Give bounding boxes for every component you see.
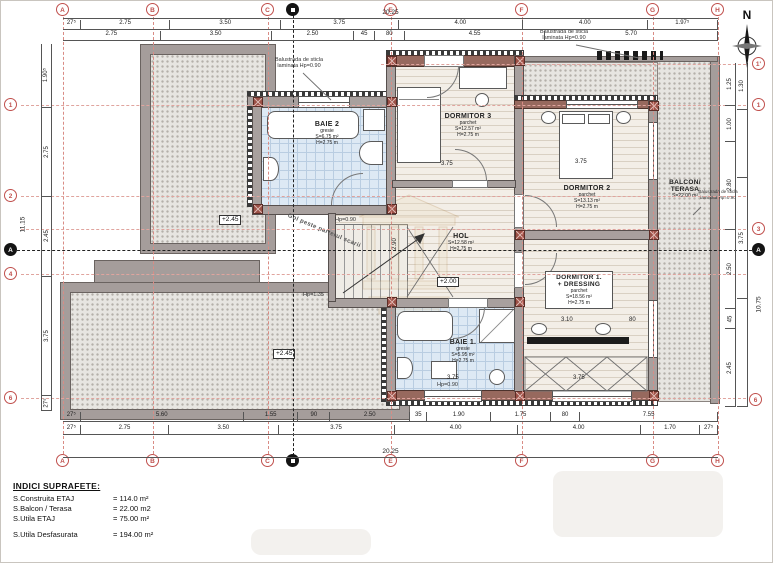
- parapet-height-note: Hp=1.35: [303, 292, 324, 298]
- room-name: HOL: [429, 233, 493, 240]
- room-height: H=2.75 m: [431, 358, 495, 364]
- parapet-height-note: Hp=0.90: [437, 382, 458, 388]
- dim-overall-bottom-value: 20.25: [382, 448, 398, 457]
- grid-line-h: [718, 17, 719, 454]
- dim-row-bottom-2: 27⁵2.753.503.754.004.001.7027⁵: [63, 425, 718, 435]
- wall-pier: [387, 391, 397, 401]
- dim-segment: 4.00: [395, 425, 518, 434]
- grid-bubble-2-left: 2: [4, 189, 17, 202]
- wall-baie2-south: [253, 206, 393, 214]
- grid-line-f: [522, 17, 523, 454]
- legend-indici-suprafete: INDICI SUPRAFETE: S.Construita ETAJ = 11…: [13, 481, 243, 540]
- parapet-height-note: Hp=0.90: [335, 217, 356, 223]
- floor-plan-canvas: BAIE 2 gresie S=6.75 m² H=2.75 m DORMITO…: [0, 0, 773, 563]
- room-height: H=2.75 m: [291, 140, 363, 146]
- grid-bubble-1-left: 1: [4, 98, 17, 111]
- legend-row-value: = 194.00 m²: [113, 530, 153, 540]
- level-marker-hol: +2.00: [437, 277, 459, 287]
- room-name: DORMITOR 2: [545, 185, 629, 192]
- grid-line-3: [21, 229, 746, 230]
- room-name: BAIE 1.: [431, 339, 495, 346]
- room-name: DORMITOR 1.: [547, 274, 611, 281]
- legend-row: S.Utila ETAJ = 75.00 m²: [13, 514, 243, 524]
- nightstand: [616, 111, 631, 124]
- dim-segment: 4.00: [399, 20, 524, 29]
- interior-dim: 3.10: [561, 317, 573, 323]
- dim-segment: 3.75: [41, 277, 51, 396]
- dim-segment: 27⁵: [63, 425, 81, 434]
- legend-row: S.Construita ETAJ = 114.0 m²: [13, 494, 243, 504]
- grid-bubble-1-right: 1: [752, 98, 765, 111]
- dim-segment: 1.00: [725, 106, 735, 142]
- dresser-dormitor1: [527, 337, 629, 344]
- room-label-baie1: BAIE 1. gresie S=5.95 m² H=2.75 m: [431, 339, 495, 364]
- dim-segment: 2.50: [725, 230, 735, 309]
- dim-segment: 2.75: [63, 31, 161, 40]
- legend-row-label: S.Utila Desfasurata: [13, 530, 113, 540]
- north-label: N: [729, 9, 765, 21]
- door-gap-baie1: [449, 299, 487, 307]
- wall-pier: [515, 391, 525, 401]
- interior-dim: 3.75: [447, 375, 459, 381]
- dim-segment: 4.00: [523, 20, 648, 29]
- wall-pier: [649, 230, 659, 240]
- legend-rows: S.Construita ETAJ = 114.0 m² S.Balcon / …: [13, 494, 243, 540]
- faint-stamp: [251, 529, 371, 555]
- wall-dormitor1-north: [523, 231, 649, 239]
- dim-segment: 45: [354, 31, 374, 40]
- dim-segment: 5.70: [545, 31, 718, 40]
- dim-segment: 2.75: [41, 108, 51, 197]
- wall-pier: [387, 204, 397, 214]
- dim-segment: 3.75: [279, 425, 395, 434]
- pillow-line: [399, 99, 439, 100]
- dim-segment: 1.97⁵: [648, 20, 718, 29]
- legend-row: S.Balcon / Terasa = 22.00 m2: [13, 504, 243, 514]
- dim-segment: 45: [725, 309, 735, 329]
- dim-segment: 4.00: [518, 425, 641, 434]
- balustrade-note-left: Balustrada de sticla laminata Hp=0.90: [267, 57, 331, 69]
- north-compass: N: [729, 9, 765, 74]
- dim-segment: 3.50: [170, 20, 281, 29]
- shower-baie1: [479, 309, 515, 343]
- room-name: BAIE 2: [291, 121, 363, 128]
- dim-segment: 3.75: [281, 20, 399, 29]
- legend-row-value: = 22.00 m2: [113, 504, 151, 514]
- section-bubble-a-right: A: [752, 243, 765, 256]
- grid-line-g: [653, 17, 654, 454]
- door-gap-dormitor3: [453, 181, 487, 187]
- wall-hol-south: [329, 299, 523, 307]
- room-label-baie2: BAIE 2 gresie S=6.75 m² H=2.75 m: [291, 121, 363, 146]
- room-height: H=2.75 m: [545, 204, 629, 210]
- section-bubble-a-left: A: [4, 243, 17, 256]
- dim-segment: 80: [551, 412, 580, 421]
- room-height: H=2.75 m: [429, 132, 507, 138]
- window-dormitor1-south: [553, 391, 631, 401]
- dim-overall-bottom: 20.25: [63, 448, 718, 458]
- nightstand: [541, 111, 556, 124]
- dim-segment: 2.75: [81, 425, 170, 434]
- legend-row: S.Utila Desfasurata = 194.00 m²: [13, 530, 243, 540]
- pillow: [562, 114, 585, 124]
- washer-baie2: [363, 109, 385, 131]
- dim-segment: [737, 299, 747, 407]
- toilet-baie1: [397, 357, 413, 379]
- room-name: DORMITOR 3: [429, 113, 507, 120]
- wall-baie2-west: [253, 107, 261, 214]
- interior-dim: 80: [629, 317, 636, 323]
- dim-segment: 35: [410, 412, 427, 421]
- section-line-horizontal: [7, 250, 762, 251]
- wall-stair-west: [329, 214, 335, 301]
- dim-segment: 80: [375, 31, 405, 40]
- grid-bubble-6-left: 6: [4, 391, 17, 404]
- room-label-dormitor1: DORMITOR 1. + DRESSING parchet S=18.56 m…: [545, 271, 613, 309]
- interior-dim: 3.75: [575, 159, 587, 165]
- dim-segment: 7.55: [580, 412, 718, 421]
- side-table: [531, 323, 547, 335]
- dim-col-right-inner: 1.251.002.802.50452.45: [725, 63, 736, 407]
- floor-hol-upper: [393, 187, 515, 217]
- dim-segment: 27⁵: [63, 412, 81, 421]
- room-label-dormitor2: DORMITOR 2 parchet S=13.13 m² H=2.75 m: [545, 185, 629, 210]
- dim-segment: 1.75: [491, 412, 551, 421]
- room-name2: + DRESSING: [547, 281, 611, 288]
- dim-overall-right: 10.75: [756, 296, 763, 312]
- dim-row-bottom-1: 27⁵5.601.55902.50351.901.75807.55: [63, 412, 718, 422]
- grid-line-b: [153, 17, 154, 454]
- interior-dim: 3.75: [441, 161, 453, 167]
- grid-line-1: [21, 105, 746, 106]
- dim-overall-top: 20.25: [63, 9, 718, 19]
- toilet-baie2: [263, 157, 279, 181]
- grid-bubble-6-right: 6: [749, 393, 762, 406]
- dim-col-right-outer: 1.303.75: [737, 63, 748, 407]
- legend-title: INDICI SUPRAFETE:: [13, 481, 243, 491]
- window-baie1-south: [425, 391, 481, 401]
- legend-row-value: = 75.00 m²: [113, 514, 149, 524]
- grid-line-e: [391, 17, 392, 454]
- interior-dim: 3.75: [573, 375, 585, 381]
- dim-segment: 3.75: [737, 178, 747, 299]
- dim-row-top-1: 27⁵2.753.503.754.004.001.97⁵: [63, 20, 718, 30]
- dim-segment: 2.50: [272, 31, 355, 40]
- grid-line-a: [63, 17, 64, 454]
- level-marker-terrace-upper: +2.45: [219, 215, 241, 225]
- grid-line-6: [21, 398, 746, 399]
- legend-row-label: S.Utila ETAJ: [13, 514, 113, 524]
- dim-overall-top-value: 20.25: [382, 9, 398, 18]
- dim-segment: 2.80: [725, 142, 735, 230]
- wall-pier: [649, 391, 659, 401]
- side-table: [595, 323, 611, 335]
- wall-pier: [649, 101, 659, 111]
- section-line-vertical: [293, 15, 294, 461]
- dim-segment: 1.90⁵: [41, 44, 51, 108]
- grid-line-c: [268, 17, 269, 454]
- dim-overall-left: 11.15: [19, 217, 26, 233]
- legend-row-label: S.Construita ETAJ: [13, 494, 113, 504]
- dim-segment: 2.50: [330, 412, 410, 421]
- pillow: [588, 114, 610, 124]
- wall-pier: [515, 230, 525, 240]
- dim-segment: 27⁵: [700, 425, 718, 434]
- interior-dim: 2.90: [392, 238, 398, 250]
- dim-segment: 5.60: [81, 412, 244, 421]
- dim-segment: 2.75: [81, 20, 171, 29]
- dim-segment: [737, 110, 747, 178]
- desk-dormitor3: [459, 67, 507, 89]
- room-height: H=2.75 m: [429, 246, 493, 252]
- dim-segment: 3.50: [161, 31, 272, 40]
- room-height: H=2.75 m: [547, 300, 611, 306]
- wall-pier: [253, 204, 263, 214]
- dim-segment: 3.50: [169, 425, 278, 434]
- room-label-dormitor3: DORMITOR 3 parchet S=12.57 m² H=2.75 m: [429, 113, 507, 138]
- dim-segment: 1.55: [244, 412, 298, 421]
- legend-row-value: = 114.0 m²: [113, 494, 149, 504]
- bathtub-baie1: [397, 311, 453, 341]
- dim-segment: 27⁵: [41, 396, 51, 411]
- grid-bubble-4-left: 4: [4, 267, 17, 280]
- dim-segment: 2.45: [41, 197, 51, 277]
- parapet-band: [95, 261, 259, 285]
- dim-col-left: 1.90⁵2.752.453.7527⁵: [41, 44, 52, 411]
- compass-rose-icon: [730, 21, 764, 69]
- dim-segment: 1.70: [641, 425, 701, 434]
- dim-segment: 4.55: [405, 31, 545, 40]
- grid-line-4: [21, 274, 746, 275]
- wall-pier: [515, 297, 525, 307]
- balcony-right: [657, 61, 711, 401]
- dim-segment: 27⁵: [63, 20, 81, 29]
- room-name: BALCON/: [657, 179, 713, 186]
- dim-segment: 2.45: [725, 329, 735, 407]
- dim-segment: 90: [298, 412, 330, 421]
- towel-radiator-baie1: [489, 369, 505, 385]
- legend-row-label: S.Balcon / Terasa: [13, 504, 113, 514]
- grid-bubble-3-right: 3: [752, 222, 765, 235]
- dim-segment: 1.90: [427, 412, 491, 421]
- wall-pier: [387, 297, 397, 307]
- grid-line-1p: [381, 64, 746, 65]
- grid-line-2: [21, 196, 746, 197]
- dim-row-top-2: 2.753.502.5045804.555.70: [63, 31, 718, 41]
- faint-stamp: [553, 471, 723, 537]
